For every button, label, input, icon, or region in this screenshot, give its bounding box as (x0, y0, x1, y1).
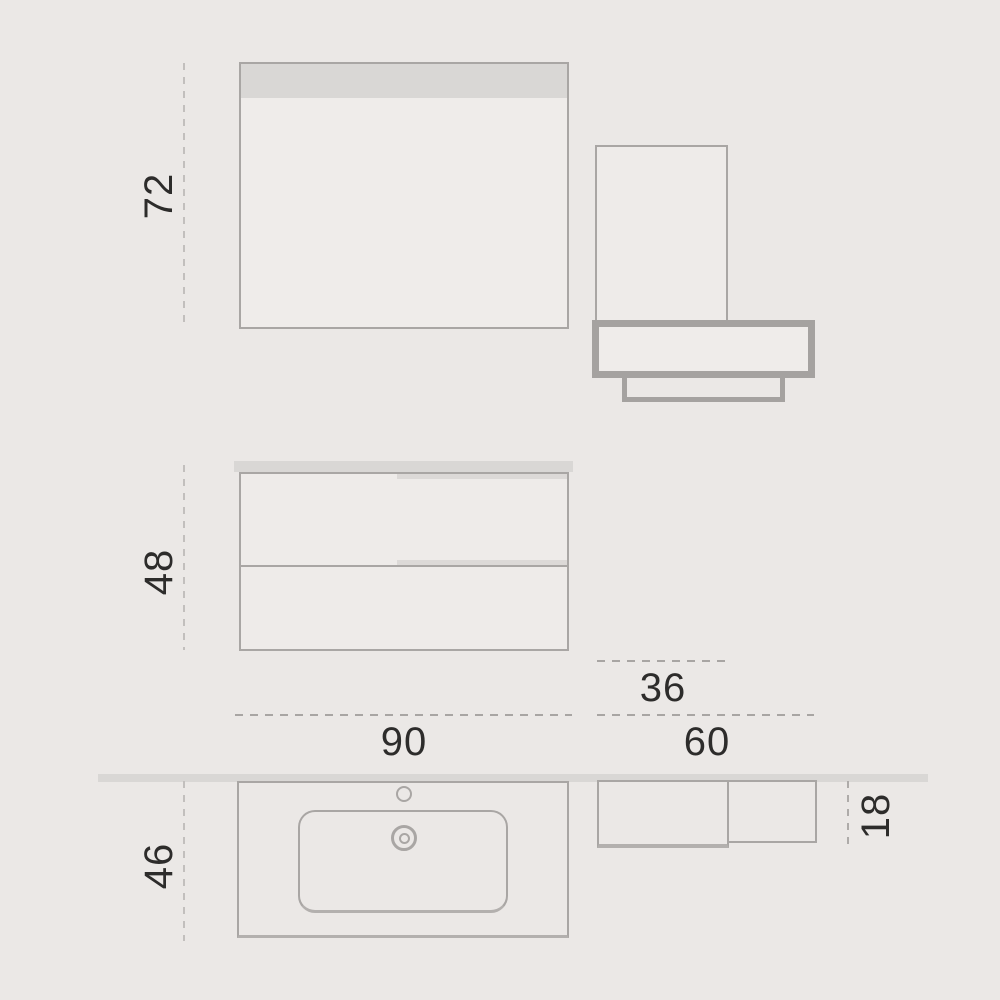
countertop-edge-front-view (234, 461, 573, 472)
drawer-handle-groove-top (397, 474, 567, 479)
dimension-label-vanity-depth: 46 (139, 843, 179, 890)
dimension-label-column-width: 36 (640, 668, 687, 708)
dimension-extent-line-18 (847, 781, 849, 845)
dimension-line-90 (235, 714, 572, 716)
dimension-extent-line-48 (183, 465, 185, 650)
dimension-extent-line-72 (183, 63, 185, 328)
mirror-top-band (241, 64, 567, 98)
drain-hole-inner-ring (399, 833, 410, 844)
dimension-extent-line-46 (183, 781, 185, 941)
dimension-label-shelf-width: 60 (684, 722, 731, 762)
dimension-label-vanity-height: 48 (139, 549, 179, 596)
dimension-label-mirror-height: 72 (139, 173, 179, 220)
vanity-cabinet-front-view (239, 472, 569, 651)
dimension-label-shelf-depth: 18 (856, 793, 896, 840)
drawer-divider-line (241, 565, 567, 567)
dimension-label-vanity-width: 90 (381, 722, 428, 762)
dimension-line-60 (597, 714, 814, 716)
dimension-diagram: 72 48 36 90 60 46 18 (0, 0, 1000, 1000)
column-cabinet-front-view (595, 145, 728, 322)
wall-shelf-front-view (592, 320, 815, 378)
wall-shelf-top-view (597, 780, 729, 848)
drain-hole (391, 825, 417, 851)
mirror-front-view (239, 62, 569, 329)
wall-shelf-top-view-right-section (727, 780, 817, 843)
dimension-line-36 (597, 660, 728, 662)
faucet-hole (396, 786, 412, 802)
